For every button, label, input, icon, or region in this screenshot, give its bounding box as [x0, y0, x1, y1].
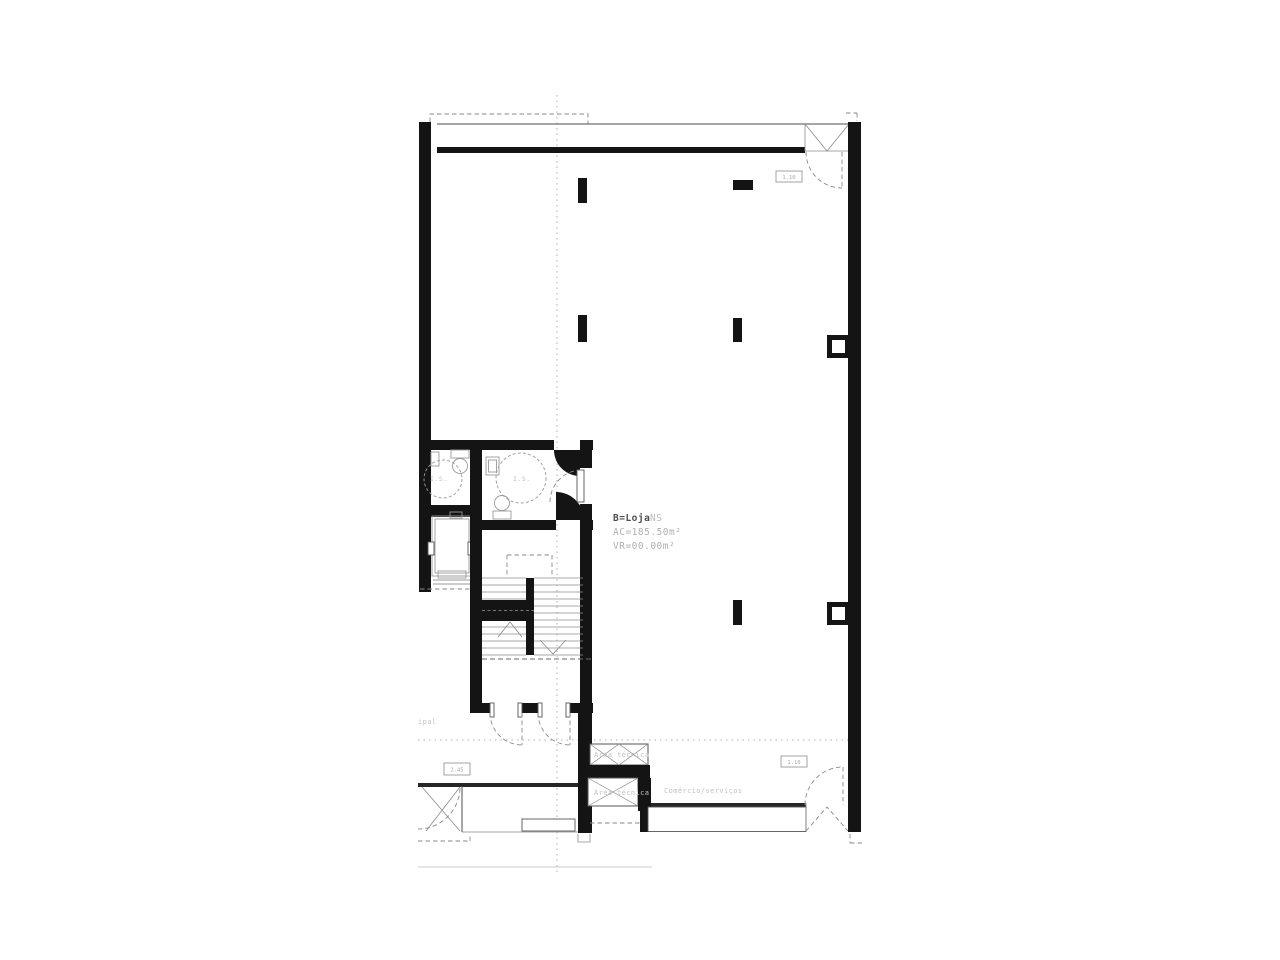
vestibule-door-right [538, 713, 570, 745]
wall-duct-lower [830, 605, 848, 623]
elevator-car [435, 519, 469, 573]
bathroom1-sink [431, 452, 439, 466]
entrance-door-leaf-left [422, 787, 460, 831]
bathroom1-label: I.S. [430, 475, 448, 483]
toilet2-tank [493, 511, 511, 519]
dim-tag-bottom-right: 1.10 [787, 760, 800, 766]
floor-plan-canvas: B=Loja NS AC=185.50m² VR=00.00m² I.S. I. [0, 0, 1280, 960]
commerce-zone-label: Comércio/serviços [664, 787, 742, 795]
bathroom2-label: I.S. [513, 475, 531, 483]
unit-area-label: AC=185.50m² [613, 527, 681, 538]
unit-name-label: B=Loja [613, 513, 650, 524]
dimension-tags: 1.10 1.10 2.45 [444, 171, 807, 775]
stair-down-arrow [540, 640, 566, 654]
toilet2-bowl [495, 496, 510, 511]
elevator-shaft-frame [432, 516, 472, 576]
lobby-door-swing-top [554, 450, 580, 476]
stair-up-arrow [498, 622, 522, 637]
bathroom2-sink-basin [489, 460, 497, 472]
storefront-left [418, 783, 590, 842]
elevator-rail-left [428, 542, 434, 555]
display-window-left [522, 819, 575, 831]
storefront-right [640, 767, 862, 843]
entrance-door-arc-right [805, 767, 843, 805]
tech-area-upper-label: Área técnica [594, 750, 649, 759]
dim-tag-bottom-left: 2.45 [450, 768, 463, 774]
perimeter-walls [419, 122, 861, 832]
threshold-notch [578, 834, 590, 842]
unit-void-label: VR=00.00m² [613, 541, 675, 552]
entrance-door-arc-left [418, 787, 460, 829]
stair-headroom-projection [507, 555, 552, 578]
toilet1-tank [451, 450, 469, 458]
top-entrance-opening [805, 124, 849, 188]
stair-treads-right-flight [534, 578, 583, 655]
right-wall [848, 122, 861, 832]
unit-name-suffix: NS [650, 513, 662, 524]
staircase [482, 555, 592, 659]
unit-label: B=Loja NS AC=185.50m² VR=00.00m² [613, 513, 681, 552]
wall-duct-upper [830, 338, 848, 356]
entrance-recess-v [806, 807, 848, 831]
bathroom2-door-leaf [577, 470, 584, 502]
floor-plan-drawing: B=Loja NS AC=185.50m² VR=00.00m² I.S. I. [0, 0, 1280, 960]
shop-window [648, 807, 806, 832]
street-label-fragment: ipal [418, 718, 436, 726]
dim-tag-top-right: 1.10 [782, 175, 795, 181]
left-wall [419, 122, 431, 592]
elevator-door [438, 571, 466, 578]
bathrooms: I.S. I.S. [419, 440, 593, 530]
columns [578, 178, 753, 625]
tech-area-lower-label: Área técnica [594, 788, 649, 797]
